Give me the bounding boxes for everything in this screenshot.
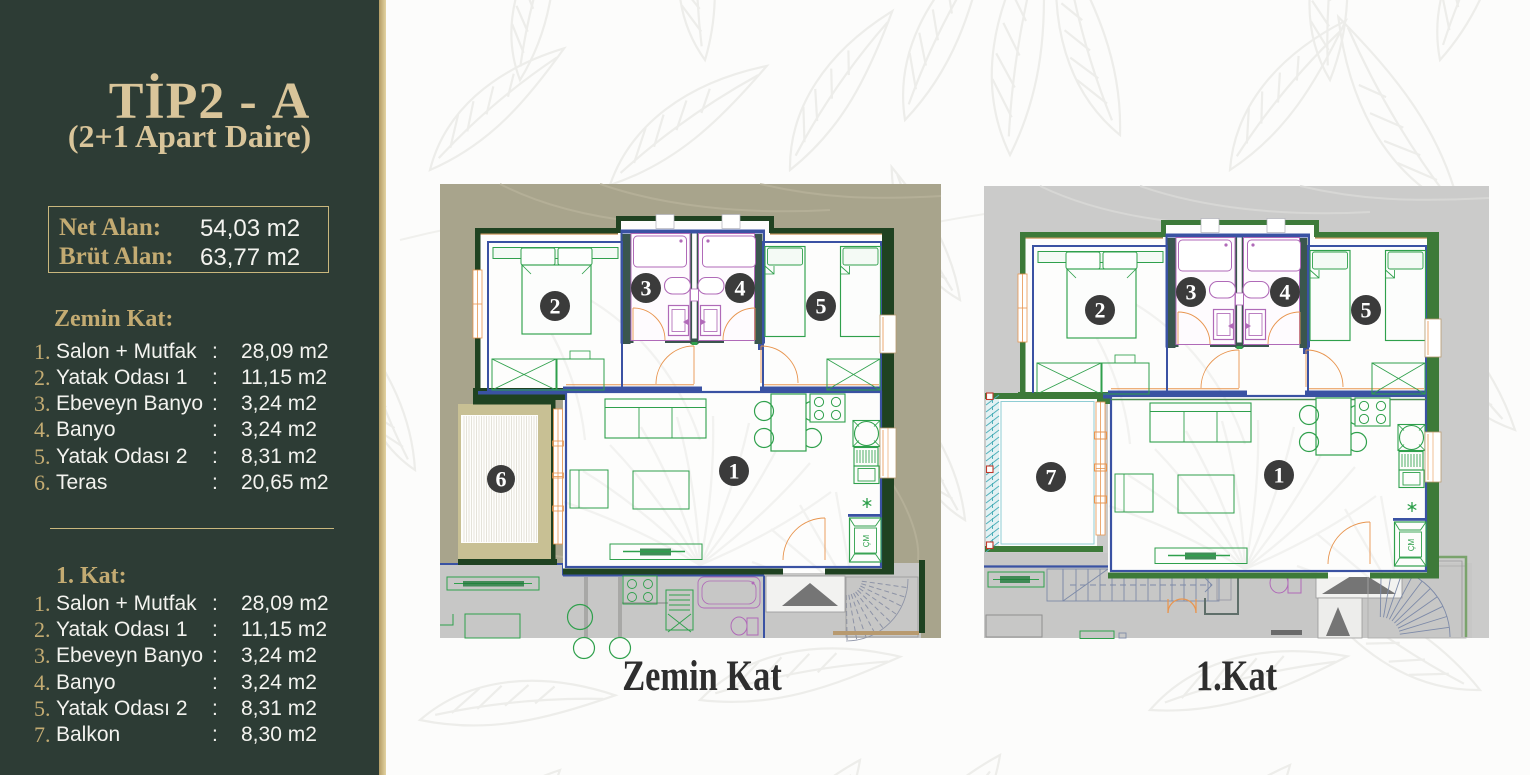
- svg-text:1: 1: [729, 459, 740, 484]
- svg-text:5: 5: [1361, 298, 1372, 323]
- svg-text:4: 4: [1280, 280, 1291, 305]
- svg-text:6: 6: [496, 467, 507, 492]
- svg-text:ÇM: ÇM: [1407, 538, 1416, 551]
- svg-text:4: 4: [735, 276, 746, 301]
- svg-text:1: 1: [1274, 463, 1285, 488]
- svg-text:3: 3: [641, 276, 652, 301]
- svg-text:7: 7: [1046, 465, 1057, 490]
- svg-text:5: 5: [816, 294, 827, 319]
- svg-text:ÇM: ÇM: [862, 534, 871, 547]
- svg-text:3: 3: [1186, 280, 1197, 305]
- svg-text:2: 2: [550, 294, 561, 319]
- svg-text:2: 2: [1095, 298, 1106, 323]
